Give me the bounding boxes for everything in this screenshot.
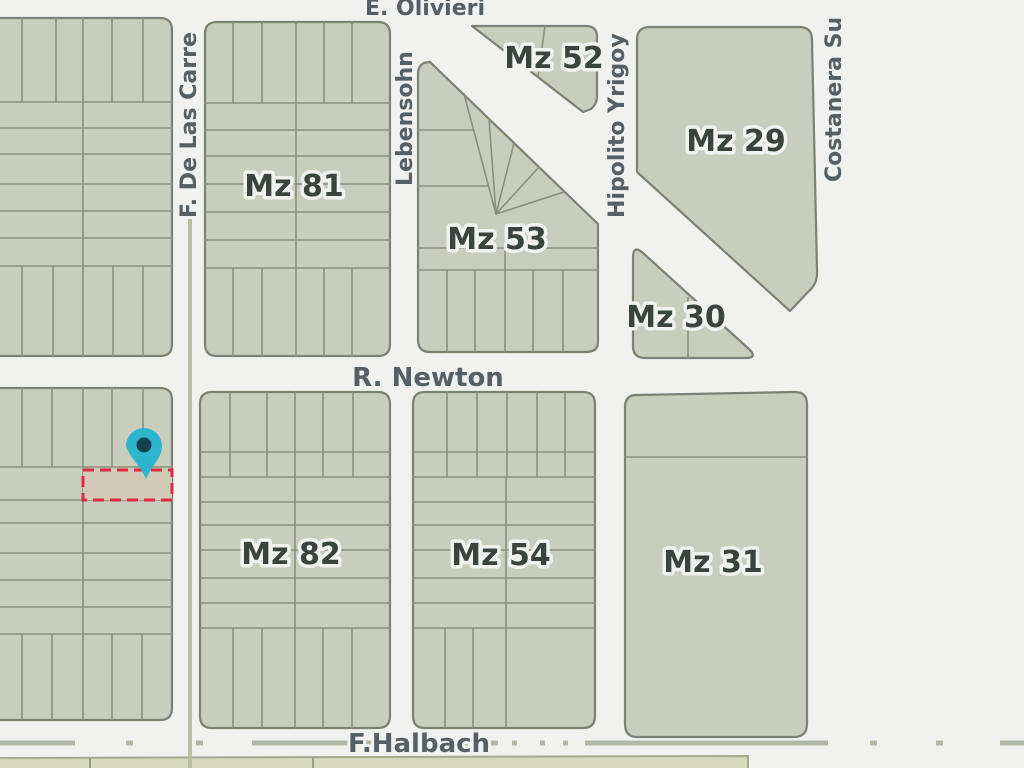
street-label-costanera-sur: Costanera Su (822, 17, 847, 182)
block-label-mz-52: Mz 52 (504, 41, 604, 76)
map-viewport[interactable]: Mz 81 Mz 53 Mz 52 Mz 29 Mz 30 Mz 82 (0, 0, 1024, 768)
block-label-mz-54: Mz 54 (451, 538, 551, 573)
block-mz-31[interactable]: Mz 31 (625, 392, 807, 737)
block-label-mz-30: Mz 30 (626, 300, 726, 335)
street-label-lebensohn: Lebensohn (393, 51, 418, 186)
street-label-r-newton: R. Newton (352, 363, 504, 393)
block-mz-54[interactable]: Mz 54 (413, 392, 595, 728)
block-label-mz-81: Mz 81 (244, 169, 344, 204)
highlighted-parcel[interactable] (83, 470, 172, 500)
block-label-mz-82: Mz 82 (241, 537, 341, 572)
block-west-north[interactable] (0, 18, 172, 356)
block-outline (0, 18, 172, 356)
street-label-f-de-las-carreras: F. De Las Carre (177, 32, 202, 218)
block-mz-81[interactable]: Mz 81 (205, 22, 390, 356)
pin-core (137, 438, 152, 453)
block-label-mz-31: Mz 31 (663, 545, 763, 580)
block-label-mz-53: Mz 53 (447, 222, 547, 257)
block-label-mz-29: Mz 29 (686, 124, 786, 159)
street-label-e-olivieri: E. Olivieri (365, 0, 485, 21)
map-canvas[interactable]: Mz 81 Mz 53 Mz 52 Mz 29 Mz 30 Mz 82 (0, 0, 1024, 768)
street-label-f-halbach: F.Halbach (348, 729, 490, 759)
street-label-hipolito-yrigoyen: Hipolito Yrigoy (605, 33, 630, 218)
block-mz-82[interactable]: Mz 82 (200, 392, 390, 728)
